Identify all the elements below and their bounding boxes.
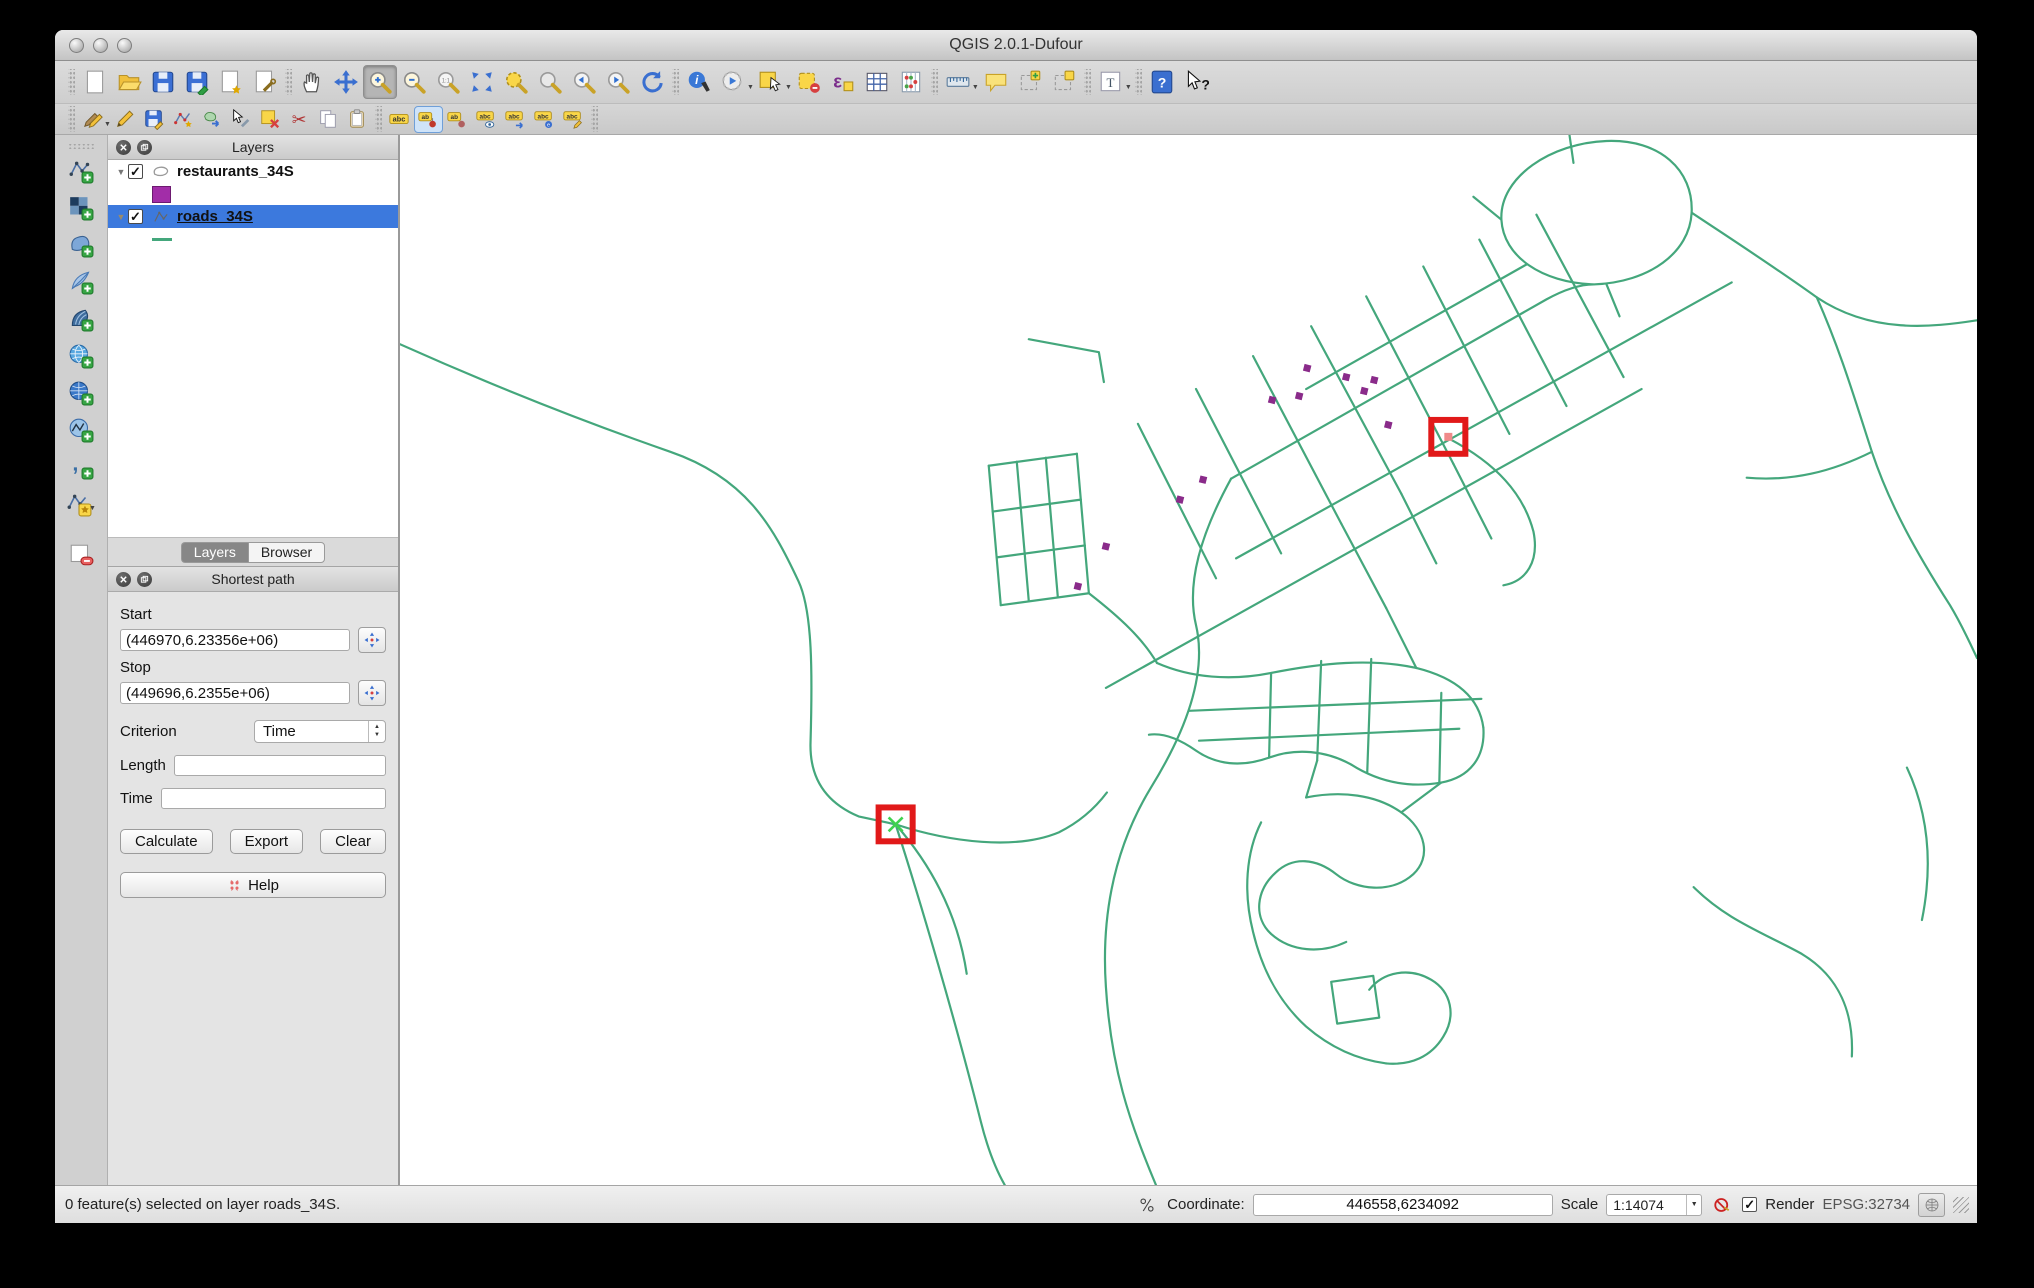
help-button-label: Help [248,877,279,894]
road-path [1236,282,1732,558]
layer-name: restaurants_34S [177,163,294,180]
scale-combo[interactable]: 1:14074 ▼ [1606,1194,1702,1216]
cut-features-button[interactable]: ✂ [285,106,314,133]
road-path [1029,339,1104,382]
road-path [896,792,1107,842]
node-tool-button[interactable] [227,106,256,133]
whats-this-button[interactable]: ? [1179,65,1213,99]
road-path [1694,887,1852,1056]
road-path [1017,462,1029,601]
zoom-full-button[interactable] [465,65,499,99]
road-path [896,824,1005,1185]
layer-item-restaurants[interactable]: ▼ ✓ restaurants_34S [108,160,398,183]
manage-layers-toolbar: , ▼ [55,135,108,1185]
road-path [997,545,1085,557]
expand-triangle-icon[interactable]: ▼ [114,167,128,177]
length-input[interactable] [174,755,386,776]
road-path [1479,240,1566,406]
label-properties-icon: abce [533,108,555,130]
restaurant-point [1074,582,1082,590]
run-feature-action-icon [720,69,746,95]
zoom-out-button[interactable] [397,65,431,99]
render-checkbox[interactable]: ✓ [1742,1197,1757,1212]
layer-checkbox[interactable]: ✓ [128,209,143,224]
shortest-path-close-button[interactable] [116,572,131,587]
restaurant-point [1360,387,1368,395]
measure-button[interactable] [941,65,975,99]
label-visibility-icon: abc [475,108,497,130]
pan-to-selection-button[interactable] [329,65,363,99]
add-mssql-layer-icon [68,306,94,332]
road-path [1401,783,1441,813]
zoom-in-icon [367,69,393,95]
save-project-as-button[interactable] [180,65,214,99]
toggle-editing-icon [114,108,136,130]
road-path [1077,454,1089,593]
svg-text:abc: abc [393,115,406,124]
label-properties-button[interactable]: abce [530,106,559,133]
start-label: Start [120,606,386,623]
toolbar-grip[interactable] [672,69,679,95]
criterion-label: Criterion [120,723,177,740]
road-path [1311,326,1401,493]
layer-item-roads[interactable]: ▼ ✓ roads_34S [108,205,398,228]
restaurant-point [1199,475,1207,483]
coordinate-input[interactable] [1253,1194,1553,1216]
dropdown-arrow-icon[interactable]: ▼ [1125,84,1132,91]
zoom-out-icon [401,69,427,95]
remove-layer-button[interactable] [61,536,101,573]
svg-text:?: ? [1201,77,1209,93]
text-annotation-button[interactable]: T [1094,65,1128,99]
label-pin-button[interactable]: ab [414,106,443,133]
svg-text:ab: ab [422,114,430,121]
svg-text:abc: abc [567,113,578,120]
map-canvas[interactable] [400,135,1977,1185]
add-delimited-text-layer-icon: , [68,454,94,480]
line-layer-icon [151,209,171,225]
field-calculator-icon [898,69,924,95]
dropdown-arrow-icon[interactable]: ▼ [785,84,792,91]
road-path [1196,389,1281,553]
export-button[interactable]: Export [230,829,303,854]
layer-name: roads_34S [177,208,253,225]
cut-features-icon: ✂ [288,108,310,130]
paste-features-button[interactable] [343,106,372,133]
svg-text:abc: abc [538,113,549,120]
add-wcs-layer-icon [68,380,94,406]
zoom-to-layer-button[interactable] [533,65,567,99]
length-label: Length [120,757,166,774]
composer-manager-button[interactable] [248,65,282,99]
layers-panel-float-button[interactable] [137,140,152,155]
road-path [1306,761,1317,798]
new-bookmark-icon [1017,69,1043,95]
add-postgis-layer-button[interactable] [61,226,101,263]
show-bookmarks-icon [1051,69,1077,95]
help-button[interactable]: Help [120,872,386,898]
qgis-window: QGIS 2.0.1-Dufour 1:1 i ▼ ▼ ε [55,30,1977,1223]
zoom-next-button[interactable] [601,65,635,99]
criterion-select[interactable]: Time ▲▼ [254,720,386,743]
status-bar: 0 feature(s) selected on layer roads_34S… [55,1185,1977,1223]
dropdown-arrow-icon[interactable]: ▼ [972,84,979,91]
pan-to-selection-icon [333,69,359,95]
add-vector-layer-icon [68,158,94,184]
new-bookmark-button[interactable] [1013,65,1047,99]
road-path [1199,729,1459,741]
node-tool-icon [230,108,252,130]
add-mssql-layer-button[interactable] [61,300,101,337]
svg-text:abc: abc [509,113,520,120]
dropdown-arrow-icon[interactable]: ▼ [747,84,754,91]
zoom-actual-icon: 1:1 [435,69,461,95]
criterion-value: Time [255,723,368,740]
zoom-in-button[interactable] [363,65,397,99]
layers-panel-close-button[interactable] [116,140,131,155]
new-project-icon [82,69,108,95]
toggle-editing-button[interactable] [111,106,140,133]
toolbar-grip[interactable] [1135,69,1142,95]
road-path [1231,284,1593,478]
restaurant-point [1342,373,1350,381]
toolbar-grip[interactable] [375,106,382,132]
zoom-full-icon [469,69,495,95]
svg-text:ε: ε [833,70,842,91]
road-path [1253,356,1341,523]
scale-value: 1:14074 [1607,1197,1686,1213]
zoom-to-layer-icon [537,69,563,95]
layer-swatch-row [108,228,398,250]
road-path [1386,608,1416,668]
time-input[interactable] [161,788,386,809]
close-icon [119,143,128,152]
select-features-icon [758,69,784,95]
toolbar-grip[interactable] [68,106,75,132]
title-bar[interactable]: QGIS 2.0.1-Dufour [55,30,1977,61]
road-path [1259,794,1424,949]
coordinate-toggle-icon [1138,1196,1156,1214]
road-path [1089,593,1157,663]
road-path [1439,693,1441,783]
capture-start-point-button[interactable] [358,627,386,653]
road-path [400,344,896,824]
label-visibility-button[interactable]: abc [472,106,501,133]
move-feature-icon [201,108,223,130]
svg-text:ab: ab [451,114,459,121]
toolbar-grip[interactable] [931,69,938,95]
add-feature-button[interactable] [169,106,198,133]
float-icon [140,143,149,152]
map-svg [400,135,1977,1185]
crs-status-button[interactable] [1918,1193,1945,1217]
road-path [1423,266,1509,433]
label-arrow-icon: abc [504,108,526,130]
layers-tree: ▼ ✓ restaurants_34S ▼ ✓ roads_34S [108,160,398,538]
road-path [1269,673,1271,758]
whats-this-icon: ? [1183,69,1209,95]
shortest-path-panel-header: Shortest path [108,567,398,592]
stop-label: Stop [120,659,386,676]
dropdown-arrow-icon[interactable]: ▼ [104,121,111,128]
road-path [989,466,1001,605]
remove-layer-icon [68,542,94,568]
label-edit-icon: abc [562,108,584,130]
deselect-features-icon [796,69,822,95]
add-spatialite-layer-button[interactable] [61,263,101,300]
start-input[interactable] [120,629,350,651]
new-composer-button[interactable] [214,65,248,99]
road-path [1907,768,1928,920]
capture-stop-point-button[interactable] [358,680,386,706]
capture-point-icon [363,631,381,649]
status-message: 0 feature(s) selected on layer roads_34S… [65,1196,340,1213]
dropdown-arrow-icon[interactable]: ▼ [89,505,96,512]
coordinate-toggle-button[interactable] [1135,1194,1159,1216]
map-tips-icon [983,69,1009,95]
main-toolbar: 1:1 i ▼ ▼ ε ▼ T▼ ? ? [55,61,1977,103]
add-vector-layer-button[interactable] [61,152,101,189]
zoom-next-icon [605,69,631,95]
stop-dot-icon [1444,433,1452,441]
new-shapefile-layer-icon [66,491,92,517]
restaurant-point [1295,392,1303,400]
zoom-to-selection-icon [503,69,529,95]
chevron-down-icon: ▼ [1686,1195,1701,1215]
select-by-expression-button[interactable]: ε [826,65,860,99]
measure-icon [945,69,971,95]
field-calculator-button[interactable] [894,65,928,99]
road-path [1105,479,1231,1185]
new-shapefile-layer-button[interactable]: ▼ [61,485,101,522]
copy-features-icon [317,108,339,130]
point-layer-icon [151,164,171,180]
digitizing-toolbar: ▼ ✂ abc ab ab abc abc abce abc [55,103,1977,135]
panel-tabs: Layers Browser [108,538,398,567]
identify-button[interactable]: i [682,65,716,99]
save-project-button[interactable] [146,65,180,99]
svg-text:T: T [1106,75,1114,90]
label-move-icon: ab [446,108,468,130]
add-wfs-layer-icon [68,417,94,443]
add-wms-layer-icon [68,343,94,369]
dock-panels: Layers ▼ ✓ restaurants_34S ▼ ✓ roads_34S [108,135,400,1185]
svg-text:,: , [72,454,78,475]
layers-panel-header: Layers [108,135,398,160]
close-icon [119,575,128,584]
clear-button[interactable]: Clear [320,829,386,854]
road-path [993,500,1081,512]
add-delimited-text-layer-button[interactable]: , [61,448,101,485]
scale-label: Scale [1561,1196,1599,1213]
road-path [1001,593,1089,605]
float-icon [140,575,149,584]
save-project-icon [150,69,176,95]
road-path [1449,439,1535,585]
road-path [896,824,967,973]
select-by-expression-icon: ε [830,69,856,95]
add-wcs-layer-button[interactable] [61,374,101,411]
add-postgis-layer-icon [68,232,94,258]
layer-swatch-row [108,183,398,205]
text-annotation-icon: T [1098,69,1124,95]
road-path [1189,699,1481,711]
crs-status-text: EPSG:32734 [1822,1196,1910,1213]
roads-swatch [152,238,172,241]
road-path [1247,822,1386,1063]
toolbar-grip[interactable] [591,106,598,132]
road-path [989,454,1077,466]
road-path [1106,389,1642,688]
zoom-actual-button[interactable]: 1:1 [431,65,465,99]
road-path [1046,458,1058,597]
restaurant-point [1384,421,1392,429]
help-contents-icon: ? [1149,69,1175,95]
stop-rendering-icon [1713,1196,1731,1214]
svg-text:?: ? [1157,74,1166,90]
save-layer-edits-icon [143,108,165,130]
road-path [1569,135,1573,163]
capture-point-icon [363,684,381,702]
delete-selected-button[interactable] [256,106,285,133]
add-feature-icon [172,108,194,130]
add-raster-layer-button[interactable] [61,189,101,226]
road-path [1369,973,1450,1064]
road-path [1401,494,1436,564]
road-path [1317,661,1321,761]
composer-manager-icon [252,69,278,95]
add-raster-layer-icon [68,195,94,221]
stop-input[interactable] [120,682,350,704]
save-layer-edits-button[interactable] [140,106,169,133]
add-wfs-layer-button[interactable] [61,411,101,448]
add-spatialite-layer-icon [68,269,94,295]
zoom-last-icon [571,69,597,95]
identify-icon: i [686,69,712,95]
road-path [1692,213,1977,326]
road-path [1473,197,1501,220]
tab-layers[interactable]: Layers [181,542,248,563]
tab-browser[interactable]: Browser [248,542,325,563]
paste-features-icon [346,108,368,130]
label-arrow-button[interactable]: abc [501,106,530,133]
move-feature-button[interactable] [198,106,227,133]
help-contents-button[interactable]: ? [1145,65,1179,99]
layer-checkbox[interactable]: ✓ [128,164,143,179]
restaurants-swatch [152,186,171,203]
svg-text:1:1: 1:1 [442,78,451,84]
zoom-last-button[interactable] [567,65,601,99]
restaurant-point [1370,376,1378,384]
road-path [1306,265,1526,390]
refresh-icon [639,69,665,95]
current-edits-icon [82,108,104,130]
stop-rendering-button[interactable] [1710,1194,1734,1216]
delete-selected-icon [259,108,281,130]
open-project-icon [116,69,142,95]
refresh-button[interactable] [635,65,669,99]
new-project-button[interactable] [78,65,112,99]
save-project-as-icon [184,69,210,95]
road-path [1366,296,1453,463]
road-path [1747,452,1872,479]
road-path [1501,141,1691,285]
shortest-path-float-button[interactable] [137,572,152,587]
add-wms-layer-button[interactable] [61,337,101,374]
current-edits-button[interactable] [78,106,107,133]
svg-text:e: e [547,123,550,129]
road-path [1817,297,1977,658]
coordinate-label: Coordinate: [1167,1196,1245,1213]
layer-labeling-icon: abc [388,108,410,130]
deselect-features-button[interactable] [792,65,826,99]
expand-triangle-icon[interactable]: ▼ [114,212,128,222]
calculate-button[interactable]: Calculate [120,829,213,854]
label-move-button[interactable]: ab [443,106,472,133]
select-features-button[interactable] [754,65,788,99]
run-feature-action-button[interactable] [716,65,750,99]
time-label: Time [120,790,153,807]
toolbar-grip[interactable] [1084,69,1091,95]
label-pin-icon: ab [417,108,439,130]
label-edit-button[interactable]: abc [559,106,588,133]
select-stepper-icon: ▲▼ [368,721,385,742]
attribute-table-icon [864,69,890,95]
toolbar-grip[interactable] [68,143,94,150]
zoom-to-selection-button[interactable] [499,65,533,99]
resize-grip[interactable] [1953,1197,1969,1213]
help-plugin-icon [227,878,242,893]
crs-globe-icon [1923,1196,1941,1214]
open-project-button[interactable] [112,65,146,99]
attribute-table-button[interactable] [860,65,894,99]
show-bookmarks-button[interactable] [1047,65,1081,99]
new-composer-icon [218,69,244,95]
shortest-path-panel: Start Stop Criterion Time ▲▼ [108,592,398,1185]
restaurant-point [1102,542,1110,550]
toolbar-grip[interactable] [68,69,75,95]
layer-labeling-button[interactable]: abc [385,106,414,133]
copy-features-button[interactable] [314,106,343,133]
restaurant-point [1303,364,1311,372]
render-label: Render [1765,1196,1814,1213]
svg-text:abc: abc [480,113,491,120]
road-path [1367,659,1371,773]
svg-text:✂: ✂ [292,109,307,129]
road-path [1351,728,1483,785]
road-path [1331,976,1379,1024]
pan-map-button[interactable] [295,65,329,99]
map-tips-button[interactable] [979,65,1013,99]
window-title: QGIS 2.0.1-Dufour [55,36,1977,54]
road-path [1607,284,1620,316]
pan-hand-icon [299,69,325,95]
toolbar-grip[interactable] [285,69,292,95]
